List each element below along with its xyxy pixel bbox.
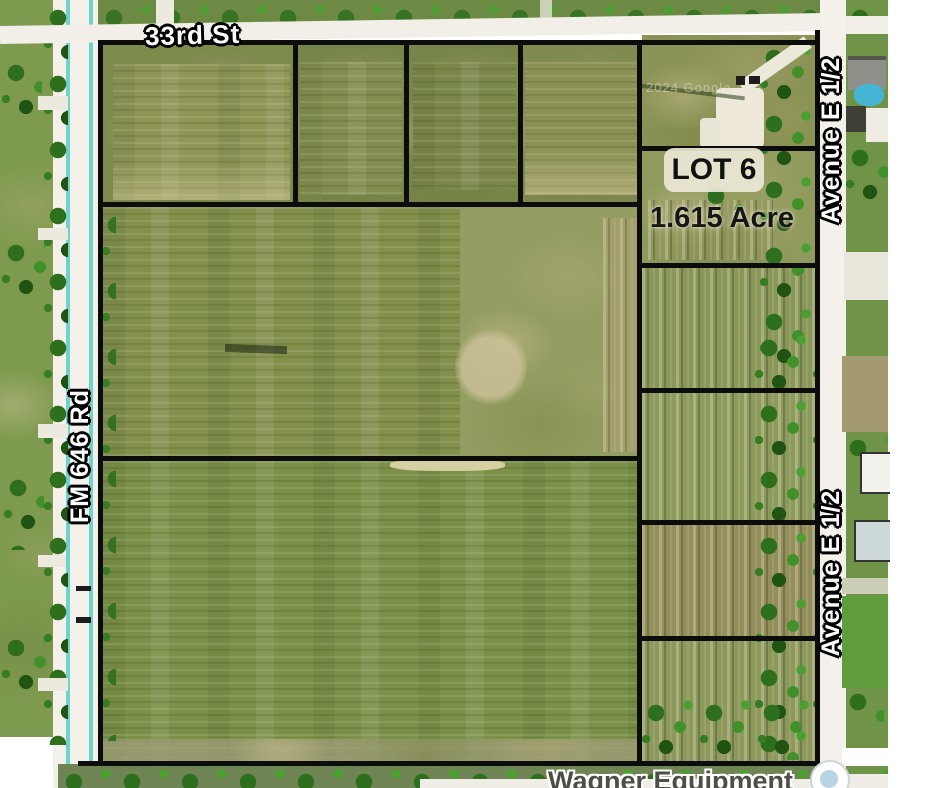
east-swimming-pool — [854, 84, 884, 106]
driveway-gap — [38, 96, 68, 110]
driveway-gap — [38, 228, 68, 240]
parcel-top-1-field — [113, 64, 290, 200]
parcel-middle-tan-strip — [603, 218, 637, 452]
driveway-gap — [38, 424, 68, 438]
driveway-gap — [38, 678, 68, 691]
parcel-top-2-field — [300, 62, 402, 195]
divider-top-v2 — [404, 40, 409, 207]
structure-dark-bit — [736, 76, 745, 85]
street-label-fm646: FM 646 Rd — [66, 393, 94, 523]
aerial-parcel-map: 2024 Google 33rd St FM 646 Rd Avenue E 1… — [0, 0, 940, 788]
boundary-left — [98, 40, 103, 766]
divider-top-v3 — [518, 40, 523, 207]
google-watermark: 2024 Google — [646, 80, 731, 95]
street-label-avenue-lower: Avenue E 1/2 — [818, 443, 844, 703]
parcel-top-3-field — [413, 62, 516, 190]
roadside-tree-row — [42, 0, 68, 745]
divider-right-h2 — [637, 263, 820, 268]
divider-right-h3 — [637, 388, 820, 393]
parcel-top-4-field — [525, 62, 637, 195]
street-label-33rd: 33rd St — [145, 19, 241, 52]
divider-right-h4 — [637, 520, 820, 525]
structure-dark-bit — [749, 76, 760, 84]
east-cross-street — [846, 16, 888, 34]
business-label-wagner: Wagner Equipment — [548, 766, 793, 788]
street-label-avenue-upper: Avenue E 1/2 — [818, 10, 844, 270]
east-dark-roof — [846, 106, 866, 132]
east-lightblue-building — [854, 520, 890, 562]
parcel-middle-sandy-patch — [455, 328, 527, 406]
east-driveway-white — [866, 108, 888, 142]
fm646-lane-dash — [76, 586, 91, 591]
lot6-label: LOT 6 — [671, 153, 756, 187]
fm646-lane-dash — [76, 617, 91, 623]
divider-toprow-bottom — [98, 202, 642, 207]
left-tree-clump — [0, 235, 46, 305]
poi-marker-glyph — [820, 770, 838, 788]
divider-right-h5 — [637, 636, 820, 641]
lot6-label-pill: LOT 6 — [664, 148, 764, 192]
east-tree-clump — [844, 140, 888, 210]
east-light-band — [842, 578, 888, 594]
east-bright-lawn — [842, 596, 888, 688]
parcel-bottom — [103, 461, 637, 761]
driveway-gap — [38, 555, 66, 567]
left-tree-clump — [0, 55, 42, 115]
divider-middle-bottom — [98, 456, 642, 461]
east-driveway-white — [844, 252, 888, 300]
east-white-building — [860, 452, 890, 494]
right-column-bottom-trees — [640, 695, 818, 761]
east-tan-field — [842, 356, 888, 432]
white-structure-small — [700, 118, 720, 148]
lot6-area-label: 1.615 Acre — [650, 202, 794, 235]
east-tree-clump — [842, 684, 884, 724]
divider-top-v1 — [293, 40, 298, 207]
left-tree-clump — [2, 470, 44, 550]
